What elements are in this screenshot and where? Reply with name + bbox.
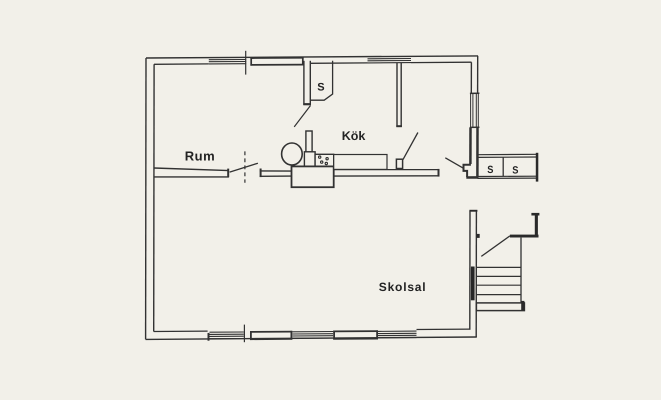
svg-text:Kök: Kök (342, 129, 366, 143)
svg-text:S: S (317, 81, 324, 93)
svg-text:Rum: Rum (185, 149, 215, 164)
svg-text:S: S (512, 164, 518, 176)
svg-text:S: S (487, 164, 493, 176)
svg-text:Skolsal: Skolsal (379, 280, 427, 294)
